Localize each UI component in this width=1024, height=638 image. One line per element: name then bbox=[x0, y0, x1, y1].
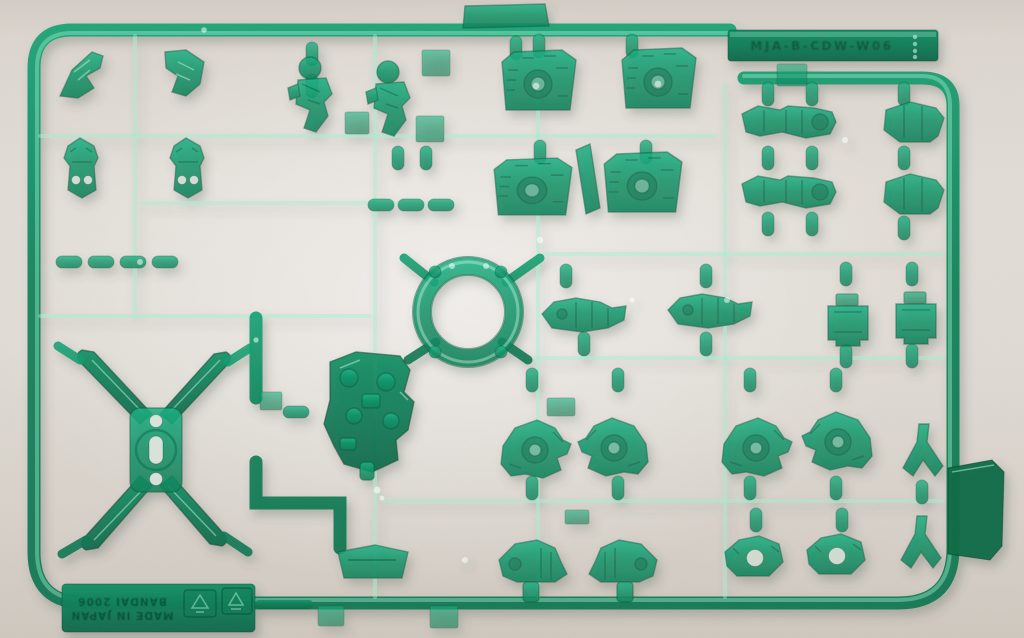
photo-model-kit-runner: MJA-B-CDW-W06 MADE IN JAPAN BANDAI 2006 bbox=[0, 0, 1024, 638]
photo-grain-overlay bbox=[0, 0, 1024, 638]
sprue-photo-canvas: MJA-B-CDW-W06 MADE IN JAPAN BANDAI 2006 bbox=[0, 0, 1024, 638]
